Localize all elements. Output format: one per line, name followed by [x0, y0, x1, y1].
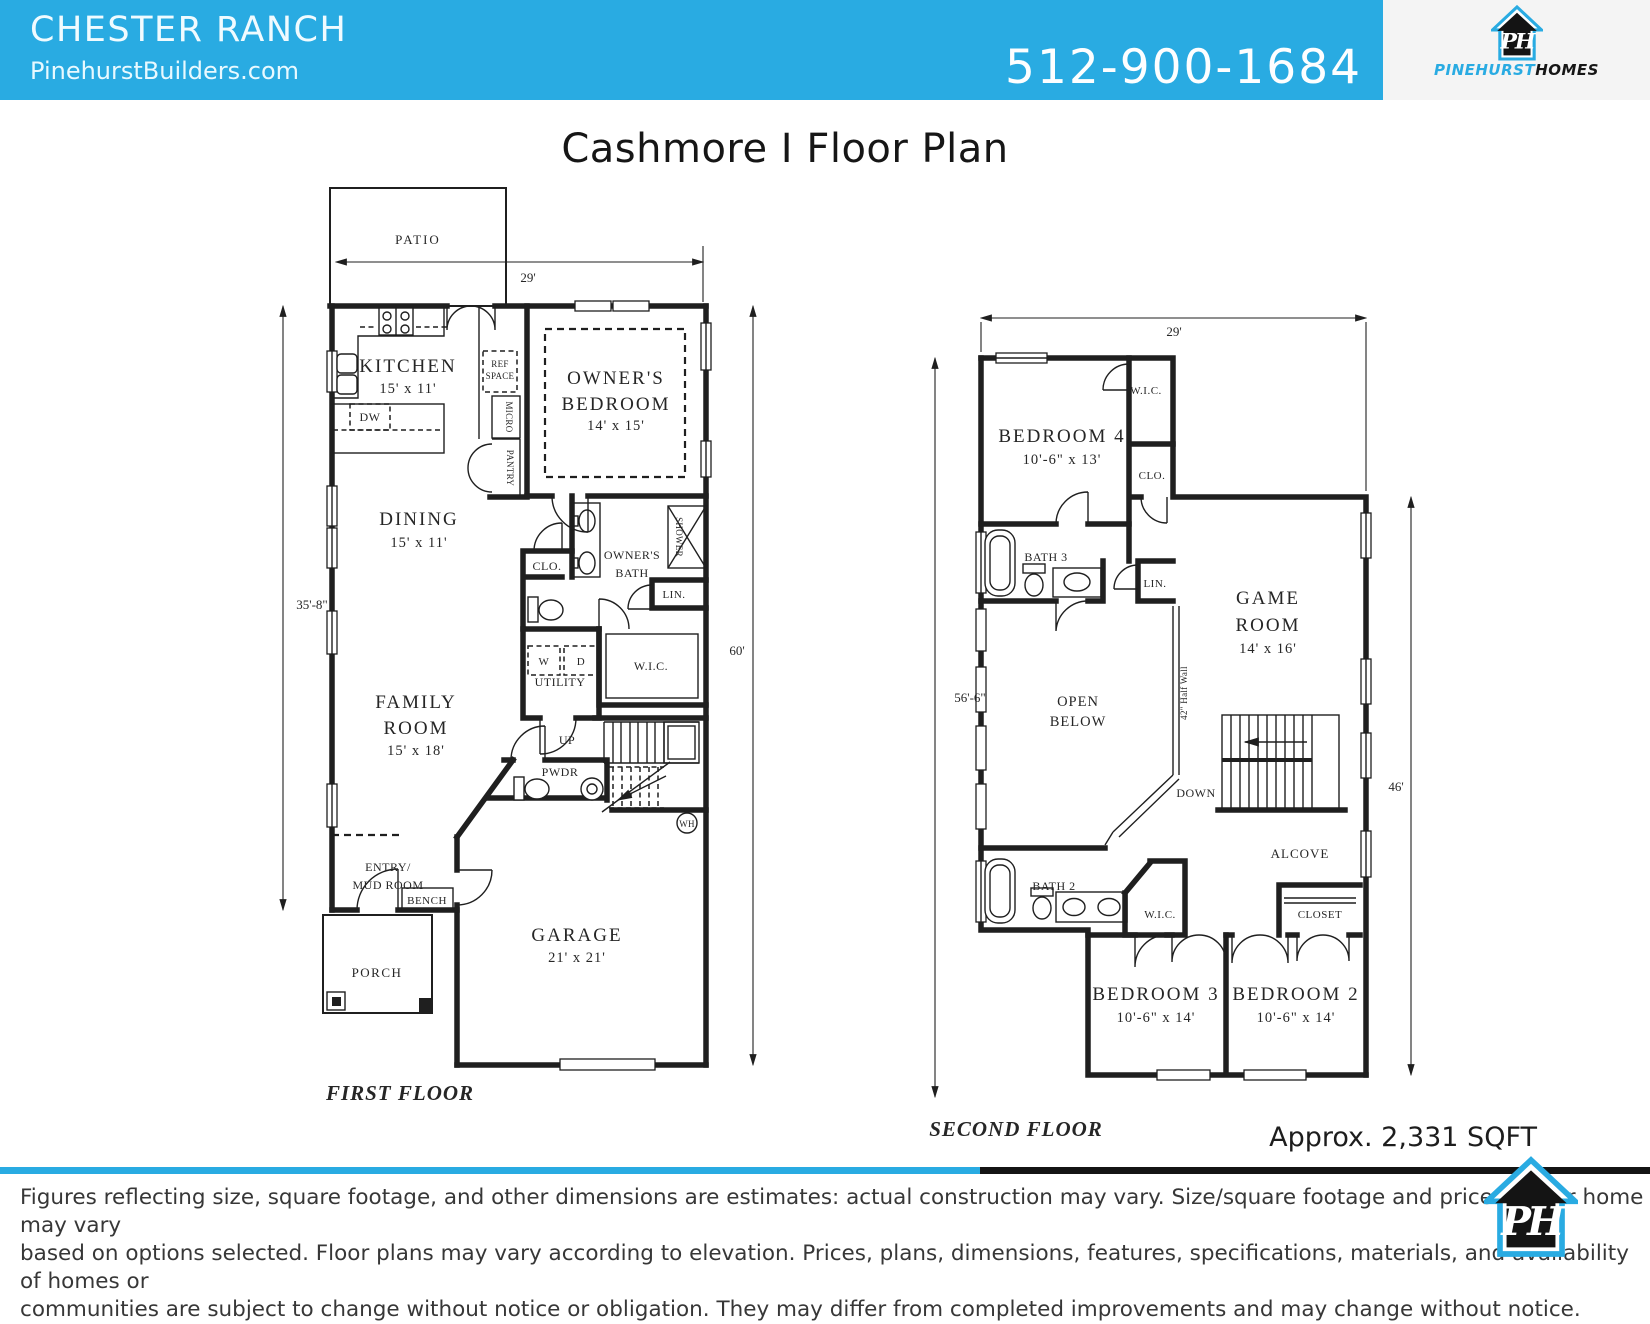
second-floor-plan: 29' 56'-6" 46' BEDROOM 4 10'-6" x 13' W.…: [860, 290, 1420, 1150]
room-label-owners-bath-2: BATH: [615, 566, 648, 580]
bath2-sink-icon: [1063, 899, 1085, 916]
dim-width-first: 29': [520, 270, 535, 285]
dim-left-first: 35'-8": [296, 597, 327, 612]
label-up: UP: [559, 733, 575, 747]
room-label-owners-2: BEDROOM: [561, 394, 670, 415]
label-clo: CLO.: [533, 559, 562, 573]
room-size-garage: 21' x 21': [548, 950, 606, 966]
label-lin: LIN.: [662, 589, 685, 601]
label-down: DOWN: [1176, 786, 1215, 800]
label-ref-space: SPACE: [486, 371, 515, 381]
bath3-toilet-icon: [1023, 564, 1045, 573]
label-washer: W: [539, 656, 550, 668]
label-alcove: ALCOVE: [1271, 846, 1330, 861]
label-bath2: BATH 2: [1032, 879, 1075, 893]
first-floor-stairs: [602, 722, 699, 812]
footer-logo: PH: [1484, 1156, 1578, 1262]
room-size-kitchen: 15' x 11': [379, 381, 436, 397]
dim-left-second: 56'-6": [954, 690, 985, 705]
disclaimer-text: Figures reflecting size, square footage,…: [20, 1184, 1650, 1324]
dim-right-second: 46': [1388, 779, 1403, 794]
brand-logo-panel: PH PINEHURSTHOMES: [1383, 0, 1650, 100]
dim-width-second: 29': [1166, 324, 1181, 339]
half-wall: [1105, 606, 1179, 845]
room-label-dining: DINING: [379, 509, 459, 530]
room-label-game-2: ROOM: [1235, 615, 1300, 636]
room-label-game: GAME: [1236, 588, 1300, 609]
label-half-wall: 42" Half Wall: [1179, 666, 1189, 720]
room-label-bedroom4: BEDROOM 4: [998, 426, 1125, 447]
first-floor-windows: [327, 301, 711, 1070]
label-lin-second: LIN.: [1143, 578, 1166, 590]
sqft-label: Approx. 2,331 SQFT: [1269, 1122, 1537, 1153]
patio-outline: [330, 188, 506, 306]
room-size-game: 14' x 16': [1239, 641, 1297, 657]
room-label-family: FAMILY: [375, 692, 457, 713]
room-label-garage: GARAGE: [531, 925, 622, 946]
footer-logo-monogram: PH: [1500, 1199, 1566, 1245]
brand-wordmark: PINEHURSTHOMES: [1383, 61, 1650, 79]
floor-plan-title: Cashmore I Floor Plan: [0, 126, 1570, 172]
label-shower: SHOWER: [674, 517, 684, 557]
disclaimer-line-2: based on options selected. Floor plans m…: [20, 1240, 1650, 1296]
label-ref: REF: [491, 359, 508, 369]
label-mud-room: MUD ROOM: [352, 878, 423, 892]
first-floor-plan: PATIO 29' 35'-8" 60' KITCHEN 15' x 11' R…: [255, 180, 775, 1100]
disclaimer-line-3: communities are subject to change withou…: [20, 1296, 1650, 1324]
room-size-dining: 15' x 11': [390, 535, 447, 551]
house-logo-icon: PH: [1491, 4, 1543, 62]
room-label-family-2: ROOM: [383, 718, 448, 739]
pwdr-sink-icon: [581, 778, 603, 800]
community-name: CHESTER RANCH: [30, 10, 347, 50]
label-wic-first: W.I.C.: [634, 659, 668, 673]
room-label-owners-bath: OWNER'S: [604, 548, 660, 562]
first-floor-walls: [330, 306, 706, 1065]
kitchen-sink-icon: [337, 354, 357, 373]
footer-house-logo-icon: PH: [1484, 1156, 1578, 1258]
toilet-icon: [528, 597, 538, 622]
logo-monogram: PH: [1499, 29, 1536, 55]
flyer-page: CHESTER RANCH PinehurstBuilders.com 512-…: [0, 0, 1650, 1275]
first-floor-label: FIRST FLOOR: [325, 1081, 474, 1100]
bath3-sink-icon: [1064, 573, 1090, 591]
room-size-bedroom4: 10'-6" x 13': [1023, 452, 1102, 468]
label-wh: WH: [679, 819, 695, 829]
dim-right-first: 60': [729, 643, 744, 658]
label-pantry: PANTRY: [505, 450, 515, 487]
room-label-bedroom2: BEDROOM 2: [1232, 984, 1359, 1005]
second-floor-label: SECOND FLOOR: [929, 1117, 1103, 1141]
footer-divider: [0, 1167, 1650, 1174]
pwdr-toilet-icon: [514, 777, 524, 800]
brand-word-pinehurst: PINEHURST: [1434, 61, 1535, 79]
room-size-bedroom2: 10'-6" x 14': [1257, 1010, 1336, 1026]
header-left: CHESTER RANCH PinehurstBuilders.com: [30, 10, 347, 85]
room-size-owners: 14' x 15': [587, 418, 645, 434]
label-dryer: D: [577, 656, 585, 668]
label-wic-bedroom4: W.I.C.: [1130, 385, 1162, 397]
header-bar: CHESTER RANCH PinehurstBuilders.com 512-…: [0, 0, 1650, 100]
room-label-bedroom3: BEDROOM 3: [1092, 984, 1219, 1005]
label-utility: UTILITY: [535, 675, 586, 689]
disclaimer-line-1: Figures reflecting size, square footage,…: [20, 1184, 1650, 1240]
label-dw: DW: [360, 410, 381, 424]
room-size-bedroom3: 10'-6" x 14': [1117, 1010, 1196, 1026]
label-micro: MICRO: [504, 401, 514, 432]
label-pwdr: PWDR: [542, 765, 579, 779]
label-wic2: W.I.C.: [1144, 909, 1176, 921]
label-clo-second: CLO.: [1139, 470, 1166, 482]
brand-word-homes: HOMES: [1535, 61, 1599, 79]
builder-website: PinehurstBuilders.com: [30, 57, 347, 85]
label-porch: PORCH: [352, 965, 403, 980]
label-below: BELOW: [1050, 714, 1107, 730]
label-bath3: BATH 3: [1024, 550, 1067, 564]
label-open: OPEN: [1057, 694, 1099, 710]
kitchen-fixtures: [332, 306, 520, 497]
room-label-kitchen: KITCHEN: [359, 356, 456, 377]
label-bench: BENCH: [407, 895, 447, 907]
room-label-owners: OWNER'S: [567, 368, 665, 389]
room-label-patio: PATIO: [395, 232, 441, 247]
second-floor-stairs: [1222, 715, 1339, 810]
label-entry: ENTRY/: [365, 860, 411, 874]
phone-number: 512-900-1684: [1005, 40, 1362, 95]
vanity-sink-icon: [579, 510, 595, 532]
label-closet: CLOSET: [1298, 909, 1343, 921]
room-size-family: 15' x 18': [387, 743, 445, 759]
